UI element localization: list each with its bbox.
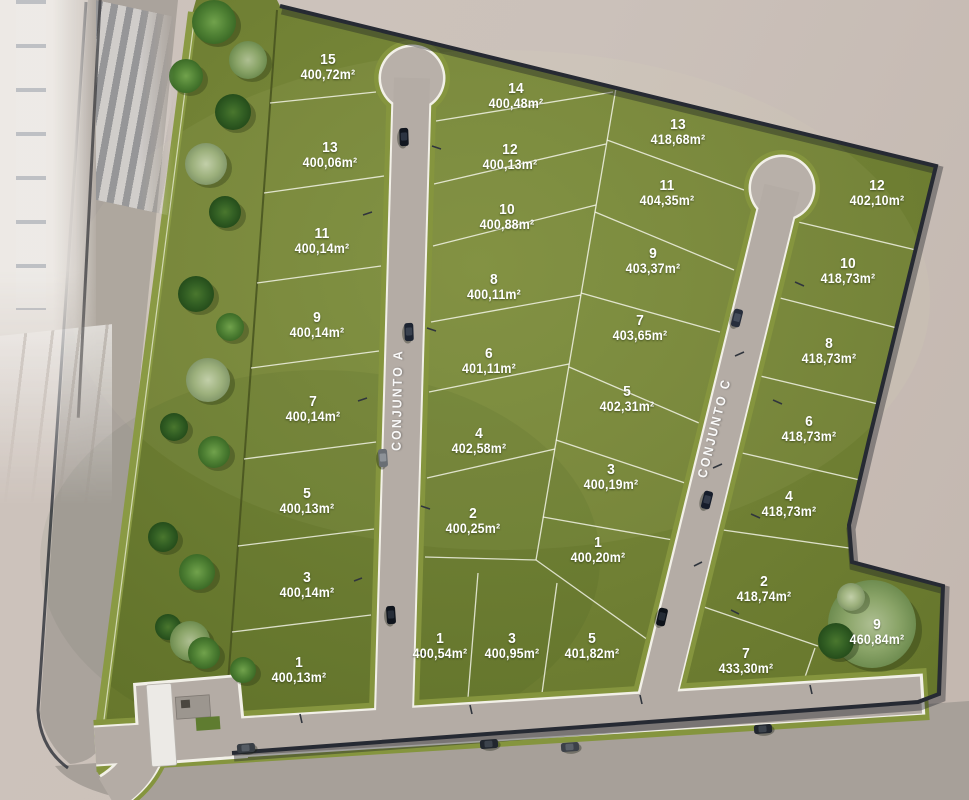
- lot-area: 418,73m²: [762, 504, 817, 519]
- lot-area: 400,06m²: [303, 155, 358, 170]
- lot-number: 4: [452, 426, 507, 441]
- lot-number: 9: [290, 310, 345, 325]
- lot-number: 13: [651, 117, 706, 132]
- lot-label-east-of-conjunto-a-2: 2400,25m²: [446, 506, 501, 536]
- lot-label-south-row-3: 3400,95m²: [485, 631, 540, 661]
- lot-label-west-of-conjunto-c-7: 7403,65m²: [613, 313, 668, 343]
- lot-number: 12: [483, 142, 538, 157]
- lot-area: 404,35m²: [640, 193, 695, 208]
- lot-label-south-row-5: 5401,82m²: [565, 631, 620, 661]
- lot-label-west-of-conjunto-a-15: 15400,72m²: [301, 52, 356, 82]
- lot-label-west-of-conjunto-c-13: 13418,68m²: [651, 117, 706, 147]
- lot-label-east-of-conjunto-c-10: 10418,73m²: [821, 256, 876, 286]
- lot-number: 9: [626, 246, 681, 261]
- lot-area: 400,13m²: [280, 501, 335, 516]
- lot-label-west-of-conjunto-a-9: 9400,14m²: [290, 310, 345, 340]
- lot-number: 5: [280, 486, 335, 501]
- lot-number: 3: [485, 631, 540, 646]
- lot-number: 14: [489, 81, 544, 96]
- lot-number: 12: [850, 178, 905, 193]
- lot-number: 5: [565, 631, 620, 646]
- lot-area: 403,37m²: [626, 261, 681, 276]
- lot-label-east-of-conjunto-c-9: 9460,84m²: [850, 617, 905, 647]
- lot-area: 400,54m²: [413, 646, 468, 661]
- masterplan-scene: 15400,72m²13400,06m²11400,14m²9400,14m²7…: [0, 0, 969, 800]
- lot-label-east-of-conjunto-a-14: 14400,48m²: [489, 81, 544, 111]
- lot-label-west-of-conjunto-c-5: 5402,31m²: [600, 384, 655, 414]
- lot-label-west-of-conjunto-a-1: 1400,13m²: [272, 655, 327, 685]
- lot-number: 4: [762, 489, 817, 504]
- lot-number: 1: [413, 631, 468, 646]
- lot-label-south-row-1: 1400,54m²: [413, 631, 468, 661]
- lot-number: 13: [303, 140, 358, 155]
- lot-area: 400,11m²: [467, 287, 521, 302]
- lot-label-east-of-conjunto-c-4: 4418,73m²: [762, 489, 817, 519]
- lot-label-east-of-conjunto-a-6: 6401,11m²: [462, 346, 516, 376]
- lot-area: 400,14m²: [295, 241, 350, 256]
- lot-area: 400,95m²: [485, 646, 540, 661]
- lot-label-east-of-conjunto-c-7: 7433,30m²: [719, 646, 774, 676]
- lot-area: 400,25m²: [446, 521, 501, 536]
- lot-area: 401,11m²: [462, 361, 516, 376]
- lot-area: 418,74m²: [737, 589, 792, 604]
- lot-label-east-of-conjunto-a-4: 4402,58m²: [452, 426, 507, 456]
- lot-number: 1: [272, 655, 327, 670]
- lot-number: 7: [613, 313, 668, 328]
- lot-area: 400,19m²: [584, 477, 639, 492]
- lot-area: 433,30m²: [719, 661, 774, 676]
- lot-area: 402,10m²: [850, 193, 905, 208]
- lot-number: 5: [600, 384, 655, 399]
- lot-label-west-of-conjunto-a-11: 11400,14m²: [295, 226, 350, 256]
- lot-number: 3: [584, 462, 639, 477]
- lot-area: 400,48m²: [489, 96, 544, 111]
- lot-label-west-of-conjunto-a-3: 3400,14m²: [280, 570, 335, 600]
- lot-area: 402,31m²: [600, 399, 655, 414]
- lot-label-east-of-conjunto-c-2: 2418,74m²: [737, 574, 792, 604]
- lot-label-west-of-conjunto-c-9: 9403,37m²: [626, 246, 681, 276]
- lot-label-east-of-conjunto-c-6: 6418,73m²: [782, 414, 837, 444]
- lot-number: 2: [737, 574, 792, 589]
- lot-label-west-of-conjunto-a-13: 13400,06m²: [303, 140, 358, 170]
- lot-number: 3: [280, 570, 335, 585]
- lot-area: 400,72m²: [301, 67, 356, 82]
- lot-area: 400,14m²: [286, 409, 341, 424]
- lot-label-east-of-conjunto-a-12: 12400,13m²: [483, 142, 538, 172]
- lot-label-west-of-conjunto-a-7: 7400,14m²: [286, 394, 341, 424]
- lot-label-east-of-conjunto-c-8: 8418,73m²: [802, 336, 857, 366]
- lot-label-west-of-conjunto-c-11: 11404,35m²: [640, 178, 695, 208]
- lot-number: 11: [640, 178, 695, 193]
- lot-number: 11: [295, 226, 350, 241]
- lot-area: 400,20m²: [571, 550, 626, 565]
- lot-area: 400,88m²: [480, 217, 535, 232]
- lot-area: 418,73m²: [782, 429, 837, 444]
- lot-number: 15: [301, 52, 356, 67]
- lot-label-east-of-conjunto-c-12: 12402,10m²: [850, 178, 905, 208]
- lot-area: 418,73m²: [802, 351, 857, 366]
- lot-area: 400,13m²: [483, 157, 538, 172]
- lot-number: 8: [467, 272, 521, 287]
- street-label-conjunto-a: CONJUNTO A: [389, 349, 406, 451]
- lot-label-west-of-conjunto-a-5: 5400,13m²: [280, 486, 335, 516]
- lot-number: 2: [446, 506, 501, 521]
- lot-number: 1: [571, 535, 626, 550]
- lot-number: 7: [719, 646, 774, 661]
- lot-number: 10: [480, 202, 535, 217]
- lot-area: 402,58m²: [452, 441, 507, 456]
- lot-number: 6: [782, 414, 837, 429]
- lot-number: 8: [802, 336, 857, 351]
- lot-labels-layer: 15400,72m²13400,06m²11400,14m²9400,14m²7…: [0, 0, 969, 800]
- lot-number: 10: [821, 256, 876, 271]
- lot-label-east-of-conjunto-a-8: 8400,11m²: [467, 272, 521, 302]
- lot-number: 9: [850, 617, 905, 632]
- lot-area: 400,13m²: [272, 670, 327, 685]
- lot-area: 403,65m²: [613, 328, 668, 343]
- lot-number: 6: [462, 346, 516, 361]
- lot-number: 7: [286, 394, 341, 409]
- lot-area: 400,14m²: [280, 585, 335, 600]
- lot-area: 418,68m²: [651, 132, 706, 147]
- lot-area: 418,73m²: [821, 271, 876, 286]
- lot-label-west-of-conjunto-c-1: 1400,20m²: [571, 535, 626, 565]
- lot-area: 401,82m²: [565, 646, 620, 661]
- lot-area: 400,14m²: [290, 325, 345, 340]
- lot-area: 460,84m²: [850, 632, 905, 647]
- lot-label-east-of-conjunto-a-10: 10400,88m²: [480, 202, 535, 232]
- lot-label-west-of-conjunto-c-3: 3400,19m²: [584, 462, 639, 492]
